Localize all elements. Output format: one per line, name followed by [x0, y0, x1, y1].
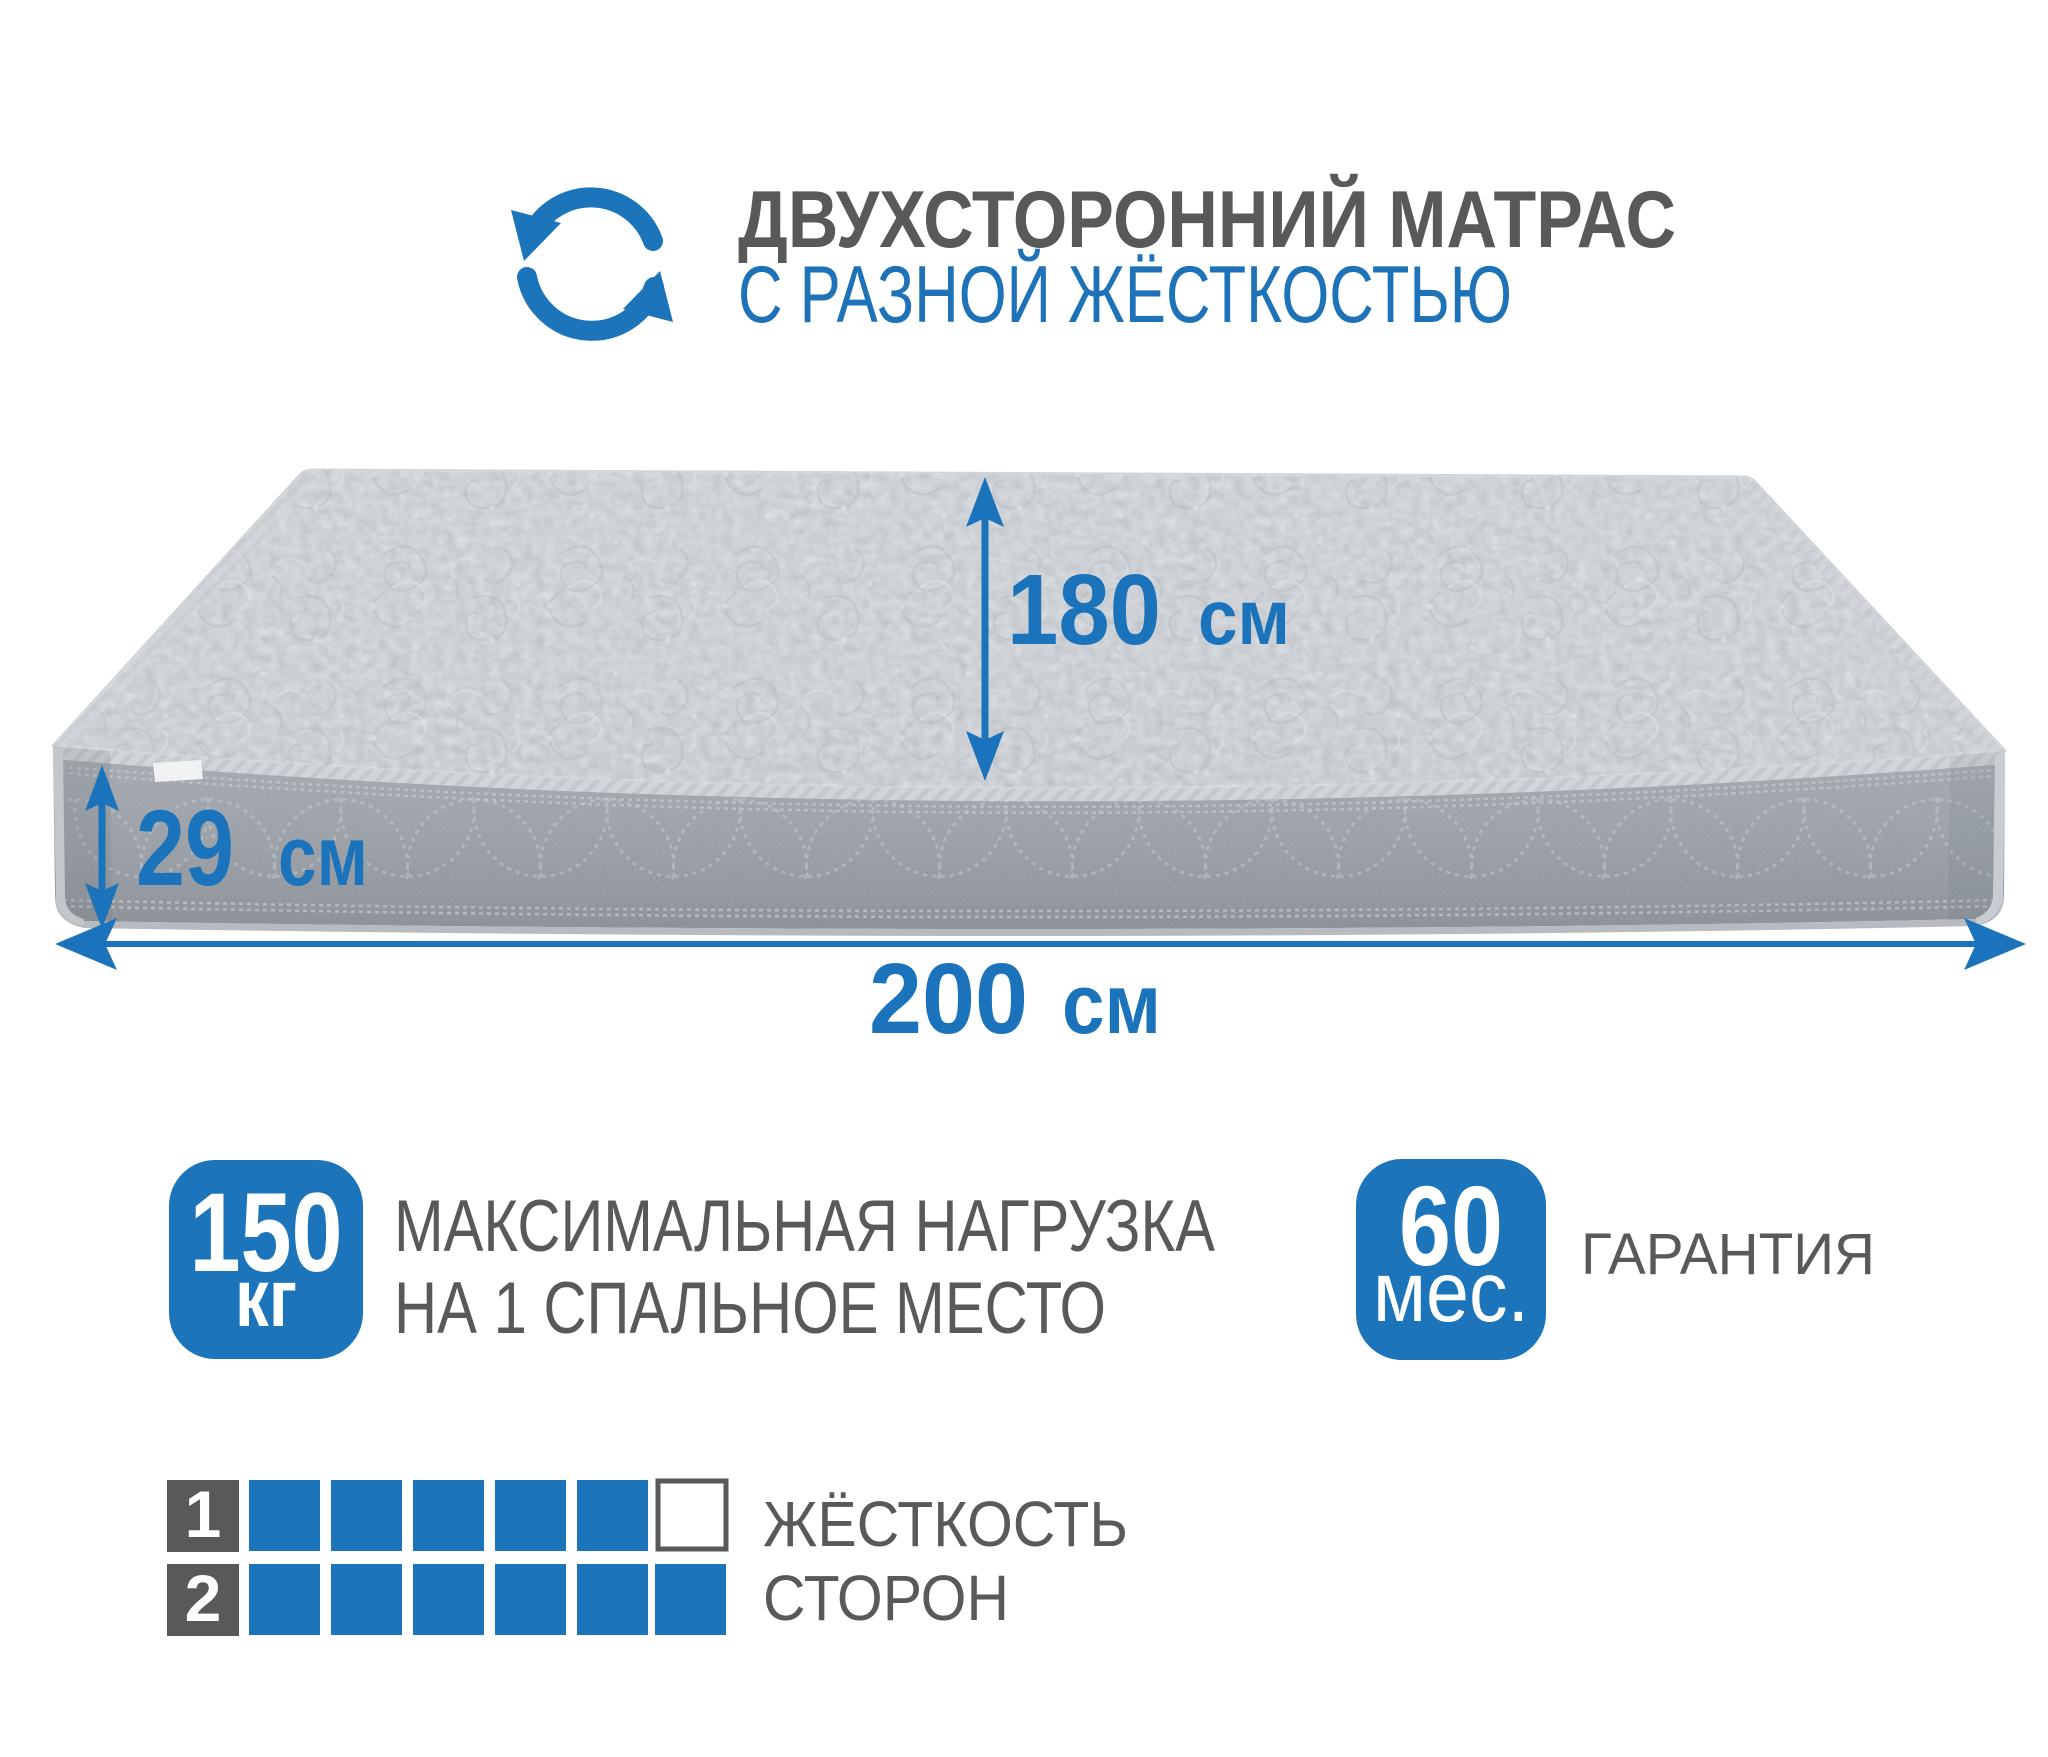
- svg-text:С РАЗНОЙ ЖЁСТКОСТЬЮ: С РАЗНОЙ ЖЁСТКОСТЬЮ: [738, 248, 1512, 340]
- svg-text:НА 1 СПАЛЬНОЕ МЕСТО: НА 1 СПАЛЬНОЕ МЕСТО: [394, 1268, 1106, 1349]
- svg-text:ЖЁСТКОСТЬ: ЖЁСТКОСТЬ: [763, 1488, 1128, 1560]
- svg-text:см: см: [278, 809, 368, 903]
- svg-text:ГАРАНТИЯ: ГАРАНТИЯ: [1581, 1222, 1875, 1287]
- svg-text:МАКСИМАЛЬНАЯ НАГРУЗКА: МАКСИМАЛЬНАЯ НАГРУЗКА: [394, 1186, 1215, 1267]
- svg-text:см: см: [1062, 957, 1161, 1051]
- svg-text:1: 1: [185, 1477, 222, 1551]
- svg-text:29: 29: [136, 787, 234, 908]
- svg-text:мес.: мес.: [1373, 1245, 1529, 1340]
- svg-text:200: 200: [869, 943, 1028, 1055]
- svg-text:см: см: [1198, 573, 1290, 661]
- svg-text:СТОРОН: СТОРОН: [763, 1562, 1009, 1634]
- svg-text:2: 2: [185, 1561, 222, 1635]
- svg-text:кг: кг: [235, 1253, 297, 1344]
- svg-text:180: 180: [1007, 554, 1161, 666]
